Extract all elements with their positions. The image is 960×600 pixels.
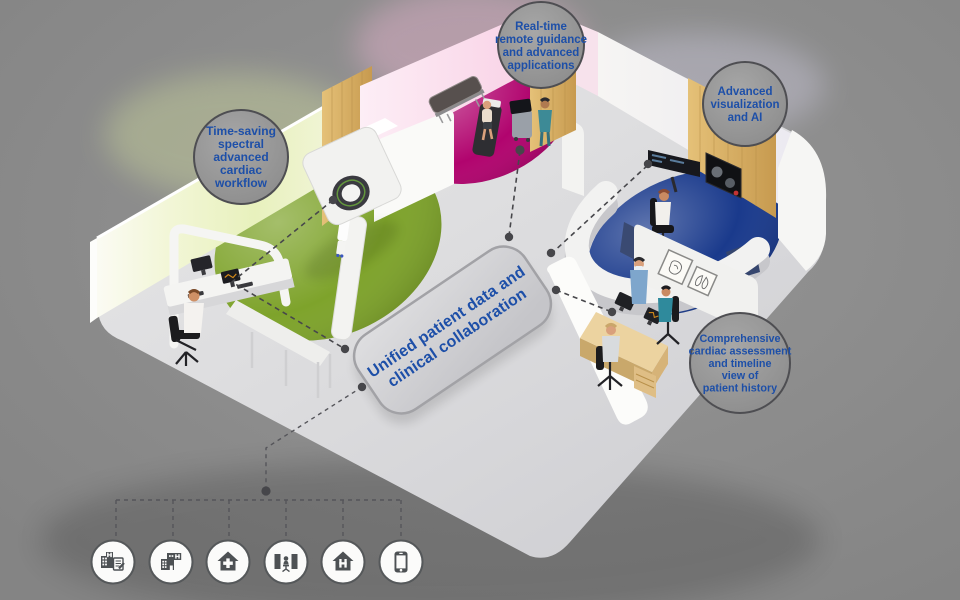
node-dot-platform-right-lower [552,286,560,294]
node-dot-platform-left [341,345,349,353]
cart-wheel [526,138,530,142]
node-dot-platform-right-upper [547,249,555,257]
teal-scrubs-body [658,298,673,322]
callout-advanced-visualization[interactable]: Advancedvisualizationand AI [703,62,787,146]
glyph [275,554,298,572]
scan-image [712,167,723,178]
imaging-workstation-icon[interactable] [265,541,308,584]
mobile-phone-icon[interactable] [380,541,423,584]
clinician-scrubs [538,110,552,132]
runner-head [483,101,491,109]
person-body-white-coat [184,303,204,333]
radiologist-body [655,202,671,226]
clinic-home-plus-icon[interactable] [207,541,250,584]
node-dot-stress-room [515,145,524,154]
node-dot-ct [329,196,337,204]
patient-body [602,336,620,362]
red-indicator [734,191,739,196]
bubble-text: Time-savingspectraladvancedcardiacworkfl… [206,124,276,190]
cart-body [512,110,532,138]
cart-wheel [514,137,518,141]
left-wall-end-cap [90,238,97,323]
node-dot-platform-bottom [358,383,366,391]
node-dot-network-junction [261,486,270,495]
callout-cardiac-assessment[interactable]: Comprehensivecardiac assessmentand timel… [689,313,792,413]
chair-seat [652,225,674,233]
blue-gown-body [630,270,648,304]
node-dot-consult-desk [608,308,616,316]
face-mask [635,266,643,270]
runner-shorts [483,122,492,129]
cardiology-suite-infographic: Unified patient data andclinical collabo… [0,0,960,600]
scan-image [725,178,735,188]
ultrasound-cart [509,99,532,142]
runner-torso [482,109,492,123]
chair-back [672,296,679,322]
node-dot-platform-top [505,233,513,241]
node-dot-reading-room [644,160,652,168]
callout-ct-workflow[interactable]: Time-savingspectraladvancedcardiacworkfl… [194,110,288,204]
glyph [395,552,408,573]
hospital-icon[interactable] [150,541,193,584]
home-hospital-icon[interactable] [322,541,365,584]
hospital-with-report-icon[interactable] [92,541,135,584]
